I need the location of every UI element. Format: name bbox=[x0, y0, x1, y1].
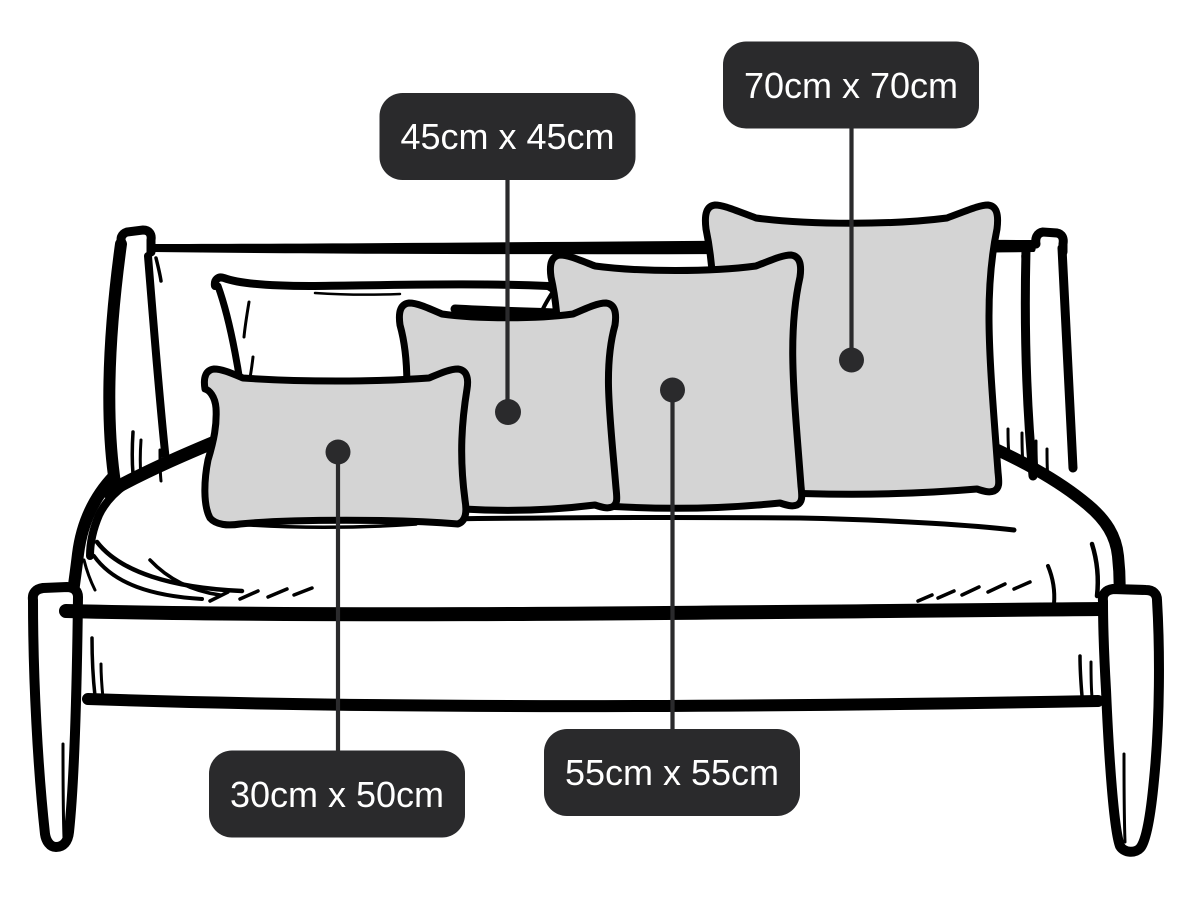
svg-text:45cm x 45cm: 45cm x 45cm bbox=[400, 116, 614, 157]
svg-text:70cm x 70cm: 70cm x 70cm bbox=[744, 65, 958, 106]
svg-text:55cm x 55cm: 55cm x 55cm bbox=[565, 752, 779, 793]
svg-text:30cm x 50cm: 30cm x 50cm bbox=[230, 774, 444, 815]
